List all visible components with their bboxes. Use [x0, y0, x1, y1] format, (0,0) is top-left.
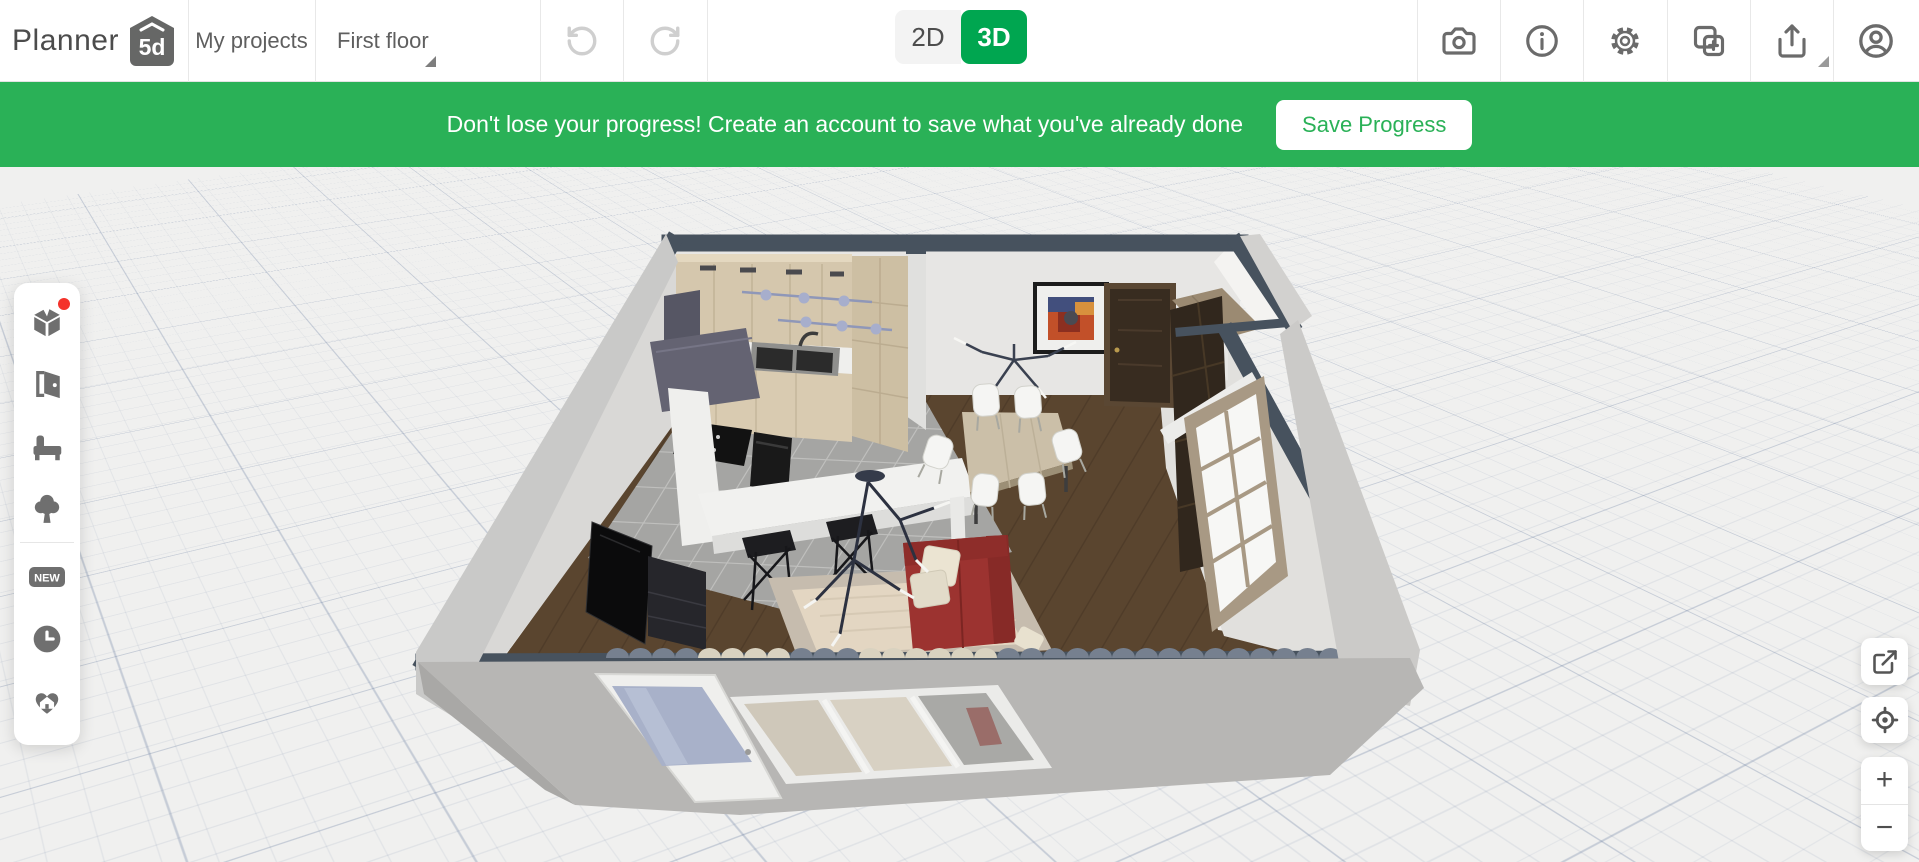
palette-divider [20, 542, 74, 543]
sidebar-item-recent[interactable] [14, 608, 80, 670]
new-badge-icon: NEW [27, 562, 67, 592]
sidebar-item-furniture[interactable] [14, 415, 80, 477]
info-icon [1524, 23, 1560, 59]
notification-dot [58, 298, 70, 310]
info-button[interactable] [1500, 0, 1583, 82]
share-button[interactable] [1750, 0, 1833, 82]
dropdown-corner-icon [1818, 56, 1829, 67]
snapshot-button[interactable] [1417, 0, 1500, 82]
sidebar-item-favorites[interactable] [14, 670, 80, 732]
zoom-in-button[interactable]: + [1861, 757, 1908, 804]
heart-home-icon [30, 684, 64, 718]
sidebar-item-build-rooms[interactable] [14, 291, 80, 353]
center-view-icon [1870, 705, 1900, 735]
tv-stand[interactable] [648, 556, 706, 650]
clock-icon [31, 623, 63, 655]
view-mode-toggle: 2D 3D [895, 10, 1027, 64]
account-icon [1857, 22, 1895, 60]
logo-wordmark: Planner [12, 24, 119, 58]
toolbar-divider [707, 0, 708, 82]
viewport-canvas[interactable] [0, 167, 1919, 862]
fullscreen-button[interactable] [1861, 638, 1908, 685]
save-progress-banner: Don't lose your progress! Create an acco… [0, 82, 1919, 167]
dropdown-corner-icon [425, 56, 436, 67]
bed-icon [29, 428, 65, 464]
center-view-button[interactable] [1861, 697, 1908, 743]
room-cube-icon [30, 305, 64, 339]
app-logo[interactable]: Planner 5d [0, 0, 188, 82]
account-button[interactable] [1833, 0, 1919, 82]
camera-icon [1441, 23, 1477, 59]
interior-door[interactable] [1104, 283, 1176, 408]
sidebar-item-outdoor[interactable] [14, 477, 80, 539]
zoom-out-button[interactable]: − [1861, 804, 1908, 851]
redo-button[interactable] [623, 0, 707, 82]
svg-text:5d: 5d [139, 34, 166, 60]
svg-text:NEW: NEW [34, 573, 60, 585]
gear-icon [1606, 22, 1644, 60]
sidebar-item-new[interactable]: NEW [14, 546, 80, 608]
front-window[interactable] [730, 685, 1052, 784]
logo-house-badge: 5d [128, 15, 176, 67]
zoom-controls: + − [1861, 757, 1908, 851]
settings-button[interactable] [1583, 0, 1667, 82]
save-progress-button[interactable]: Save Progress [1276, 100, 1472, 150]
my-projects-button[interactable]: My projects [188, 0, 315, 82]
fullscreen-icon [1871, 648, 1899, 676]
sidebar-item-doors-windows[interactable] [14, 353, 80, 415]
top-toolbar: Planner 5d My projects First floor 2D 3D [0, 0, 1919, 82]
add-project-icon [1691, 23, 1727, 59]
tree-icon [30, 491, 64, 525]
add-project-button[interactable] [1667, 0, 1750, 82]
tool-palette: NEW [14, 283, 80, 745]
share-icon [1774, 23, 1810, 59]
wall-art[interactable] [1035, 284, 1107, 352]
view-2d-button[interactable]: 2D [895, 10, 961, 64]
banner-message: Don't lose your progress! Create an acco… [447, 111, 1243, 138]
undo-button[interactable] [540, 0, 623, 82]
door-icon [30, 367, 64, 401]
floor-selector[interactable]: First floor [315, 0, 540, 82]
floorplan-3d-scene[interactable] [0, 167, 1919, 862]
view-3d-button[interactable]: 3D [961, 10, 1027, 64]
redo-icon [648, 24, 682, 58]
undo-icon [565, 24, 599, 58]
partition-wall[interactable] [906, 243, 926, 430]
